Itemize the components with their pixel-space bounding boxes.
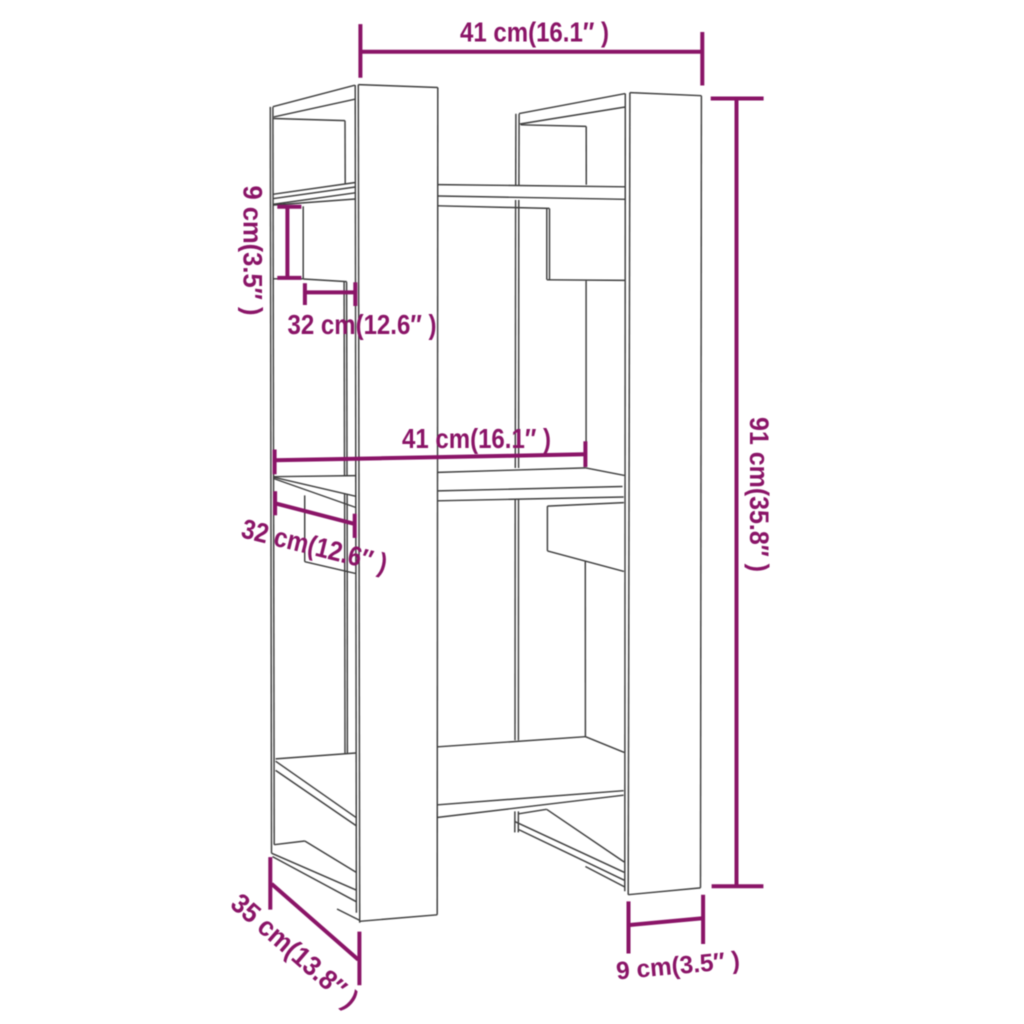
svg-text:91 cm(35.8″ ): 91 cm(35.8″ ) [744,417,774,572]
svg-text:9 cm(3.5″ ): 9 cm(3.5″ ) [615,946,741,985]
svg-text:9 cm(3.5″ ): 9 cm(3.5″ ) [238,186,268,316]
svg-text:32 cm(12.6″ ): 32 cm(12.6″ ) [239,513,391,579]
svg-text:32 cm(12.6″ ): 32 cm(12.6″ ) [288,309,437,340]
svg-text:41 cm(16.1″ ): 41 cm(16.1″ ) [402,423,551,454]
svg-text:41 cm(16.1″ ): 41 cm(16.1″ ) [460,17,609,48]
